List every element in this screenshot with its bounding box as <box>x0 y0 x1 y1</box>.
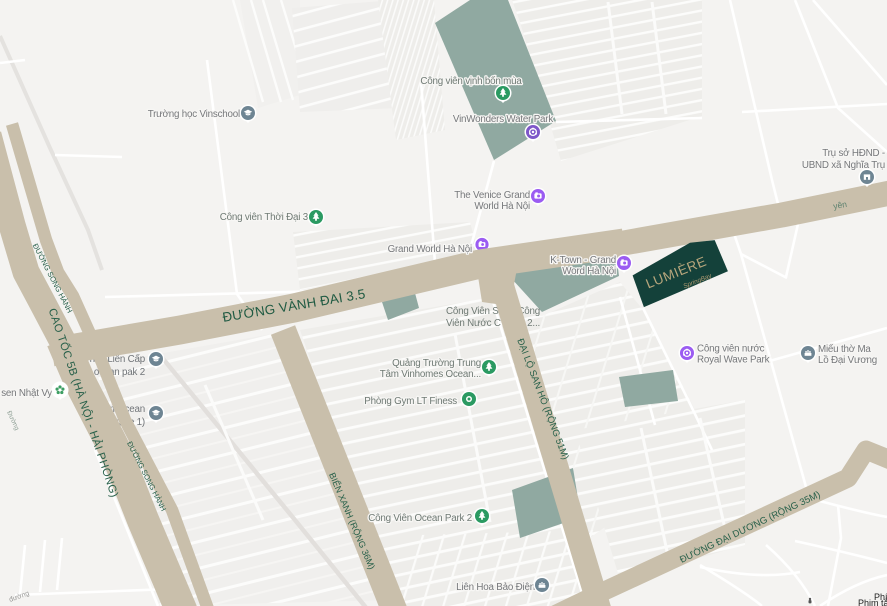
svg-text:UBND xã Nghĩa Trụ: UBND xã Nghĩa Trụ <box>802 160 885 171</box>
svg-text:Viên Nước C: Viên Nước C <box>446 318 501 329</box>
svg-text:Công viên nước: Công viên nước <box>697 344 765 355</box>
svg-text:Công Viên Ocean Park 2: Công Viên Ocean Park 2 <box>368 513 472 524</box>
svg-text:The Venice Grand: The Venice Grand <box>454 190 530 201</box>
svg-text:Tâm Vinhomes Ocean...: Tâm Vinhomes Ocean... <box>380 369 481 380</box>
svg-text:Phòng Gym LT Finess: Phòng Gym LT Finess <box>364 396 457 407</box>
svg-text:VinWonders Water Park: VinWonders Water Park <box>453 114 553 125</box>
svg-text:K-Town - Grand: K-Town - Grand <box>550 255 616 266</box>
svg-text:Công Viên Sô: Công Viên Sô <box>446 306 505 317</box>
svg-text:Công viên Thời Đại 3: Công viên Thời Đại 3 <box>220 212 309 223</box>
svg-text:Trường học Vinschool: Trường học Vinschool <box>148 109 240 120</box>
svg-text:World Hà Nội: World Hà Nội <box>474 201 530 212</box>
svg-text:Miếu thờ Ma: Miếu thờ Ma <box>818 344 871 355</box>
svg-text:Trụ sở HĐND -: Trụ sở HĐND - <box>822 148 885 159</box>
svg-text:Royal Wave Park: Royal Wave Park <box>697 355 770 366</box>
svg-text:Lồ Đại Vương: Lồ Đại Vương <box>818 355 877 366</box>
svg-text:Liên Hoa Bảo Điện: Liên Hoa Bảo Điện <box>456 582 535 593</box>
svg-text:sen Nhật Vy: sen Nhật Vy <box>1 388 52 399</box>
svg-text:Word Hà Nội: Word Hà Nội <box>562 266 616 277</box>
svg-text:Quảng Trường Trung: Quảng Trường Trung <box>392 358 481 369</box>
svg-text:Phim tắt: Phim tắt <box>858 598 887 606</box>
svg-text:Grand World Hà Nội: Grand World Hà Nội <box>388 244 472 255</box>
svg-text:Công viên vịnh bốn mùa: Công viên vịnh bốn mùa <box>420 76 522 87</box>
